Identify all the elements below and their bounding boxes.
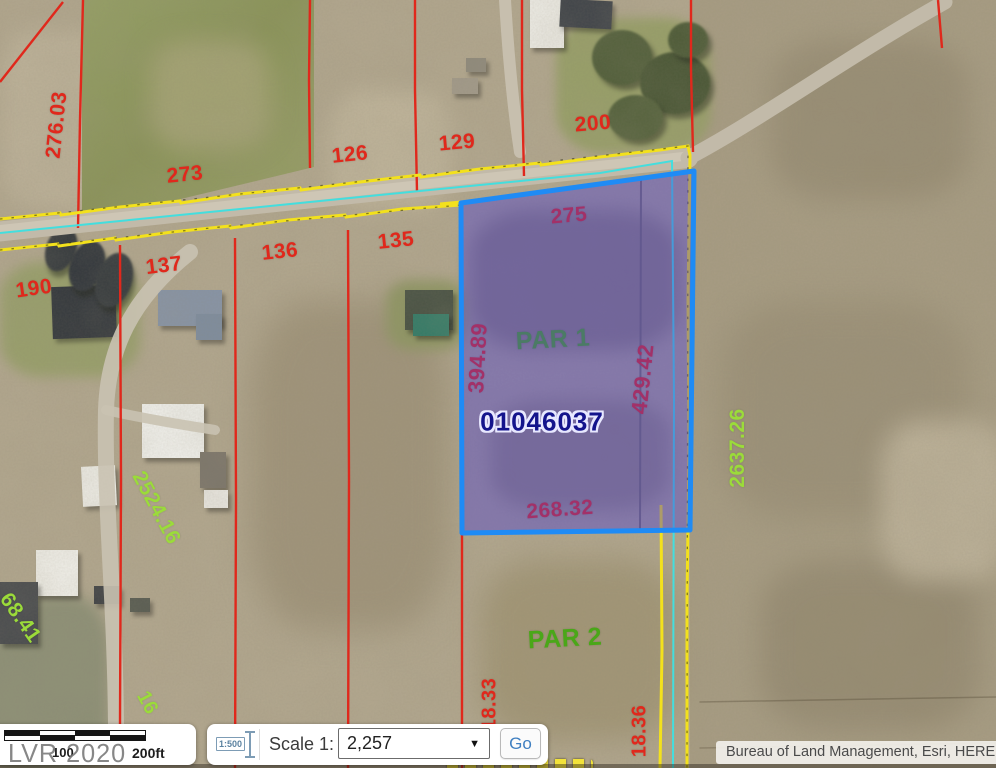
highlight-parcel-polygon[interactable] (461, 171, 694, 533)
scale-label: Scale 1: (269, 724, 334, 765)
scale-control-panel: 1:500 Scale 1: 2,257 ▼ Go (207, 724, 548, 765)
dropdown-arrow-icon[interactable]: ▼ (469, 729, 480, 759)
map-scale-icon: 1:500 (216, 737, 245, 751)
scalebar-end-label: 200ft (132, 745, 165, 761)
map-canvas[interactable]: 276.03 273 126 129 200 190 137 136 135 2… (0, 0, 996, 768)
scale-select[interactable]: 2,257 ▼ (338, 728, 490, 759)
watermark: LVR 2020 (8, 738, 126, 768)
divider (259, 729, 260, 760)
scale-select-value: 2,257 (347, 733, 392, 753)
highlight-layer (0, 0, 996, 768)
ruler-icon (245, 731, 255, 758)
map-attribution: Bureau of Land Management, Esri, HERE (716, 741, 996, 764)
parcel-apn-label: 01046037 (480, 407, 604, 438)
go-button[interactable]: Go (500, 728, 541, 759)
